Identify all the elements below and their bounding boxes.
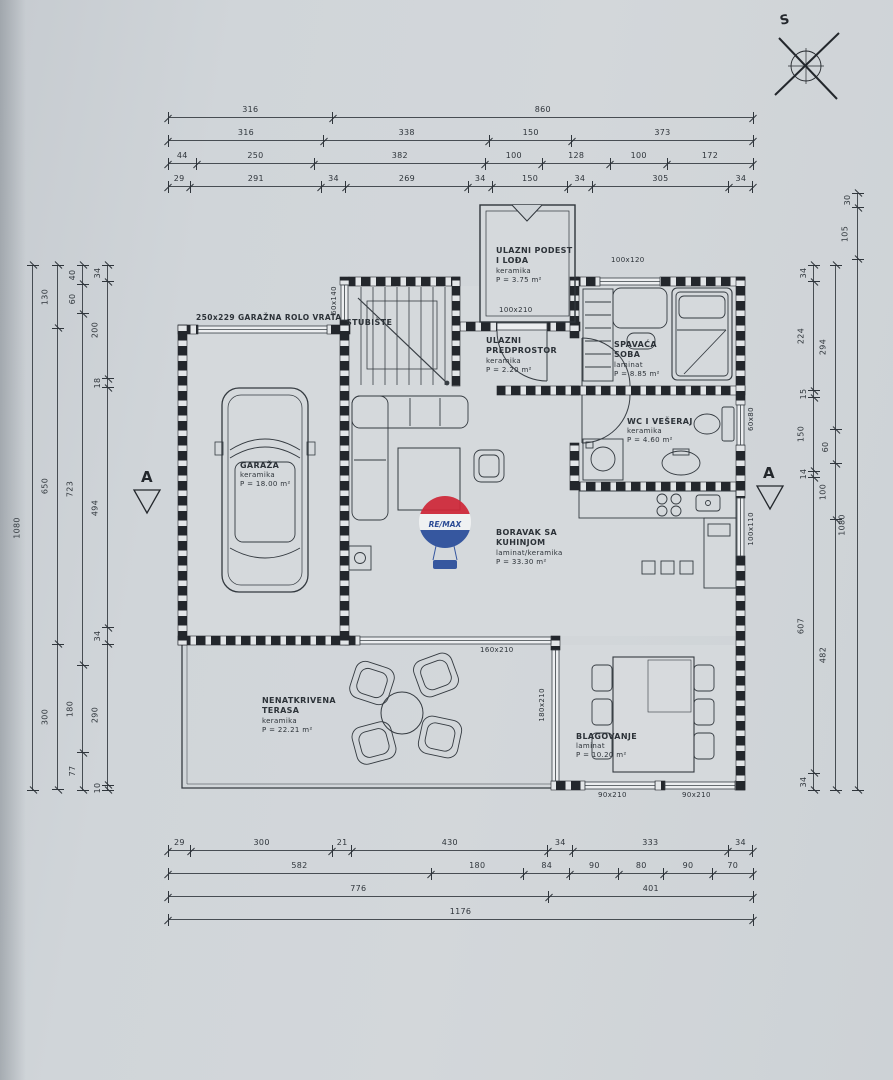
dim-label: 430: [442, 838, 458, 847]
opening-label-dining-window-a: 90x210: [598, 791, 627, 799]
dim-segment: 100: [610, 151, 667, 164]
room-floor: keramika: [262, 717, 336, 726]
room-label-spavaca-soba: SPAVAĆA SOBA laminat P = 8.85 m²: [614, 340, 660, 379]
dim-segment: 34: [728, 838, 753, 851]
dim-label: 150: [523, 128, 539, 137]
room-name: TERASA: [262, 706, 336, 716]
dim-label: 180: [65, 701, 74, 717]
dim-label: 316: [238, 128, 254, 137]
room-label-boravak: BORAVAK SA KUHINJOM laminat/keramika P =…: [496, 528, 563, 567]
dim-label: 34: [475, 174, 486, 183]
room-name: NENATKRIVENA: [262, 696, 336, 706]
dim-label: 1176: [450, 907, 472, 916]
dim-label: 29: [174, 838, 185, 847]
dim-label: 200: [90, 322, 99, 338]
dimension-row: 316860: [168, 100, 753, 118]
dim-segment: 128: [542, 151, 610, 164]
room-area: P = 2.20 m²: [486, 366, 557, 375]
room-floor: keramika: [240, 471, 291, 480]
dim-label: 34: [799, 268, 808, 279]
dim-segment: 723: [67, 314, 83, 665]
floor-plan-sheet: RE/MAX ULAZNI PODEST I LOĐA keramika P =…: [0, 0, 893, 1080]
dim-label: 40: [68, 269, 77, 280]
dim-label: 70: [727, 861, 738, 870]
dim-label: 90: [683, 861, 694, 870]
dim-segment: 10: [92, 785, 108, 790]
room-floor: laminat: [576, 742, 637, 751]
dim-label: 21: [337, 838, 348, 847]
room-label-podest: ULAZNI PODEST I LOĐA keramika P = 3.75 m…: [496, 246, 573, 285]
dim-segment: 180: [431, 861, 524, 874]
dim-label: 294: [818, 339, 827, 355]
dim-label: 1080: [838, 514, 847, 536]
dim-label: 100: [631, 151, 647, 160]
dim-label: 401: [643, 884, 659, 893]
dimension-column: 406072318077: [67, 265, 83, 790]
dim-label: 373: [654, 128, 670, 137]
dim-segment: 650: [42, 328, 58, 644]
dimension-column: 1080: [17, 265, 33, 790]
opening-label-entry-door: 100x210: [499, 306, 533, 314]
dim-segment: 34: [321, 174, 345, 187]
dim-segment: 224: [798, 282, 814, 391]
room-area: P = 33.30 m²: [496, 558, 563, 567]
dim-segment: 100: [820, 464, 836, 520]
dim-label: 34: [93, 631, 102, 642]
dim-segment: 60: [820, 430, 836, 464]
terrace-chairs: [347, 650, 463, 766]
dim-segment: 100: [485, 151, 542, 164]
dim-segment: 494: [92, 388, 108, 628]
room-area: P = 4.60 m²: [627, 436, 693, 445]
dim-label: 582: [291, 861, 307, 870]
room-name: BLAGOVANJE: [576, 732, 637, 742]
dim-label: 100: [818, 484, 827, 500]
room-area: P = 18.00 m²: [240, 480, 291, 489]
dim-label: 291: [248, 174, 264, 183]
room-label-blagovanje: BLAGOVANJE laminat P = 10.20 m²: [576, 732, 637, 761]
dim-segment: 34: [729, 174, 753, 187]
dim-segment: 401: [549, 884, 753, 897]
dim-label: 100: [506, 151, 522, 160]
dim-label: 776: [350, 884, 366, 893]
dim-segment: 150: [489, 128, 571, 141]
section-label-left: A: [141, 468, 153, 486]
dim-segment: 300: [191, 838, 333, 851]
dim-label: 77: [68, 766, 77, 777]
room-label-predprostor: ULAZNI PREDPROSTOR keramika P = 2.20 m²: [486, 336, 557, 375]
dim-label: 80: [636, 861, 647, 870]
dim-label: 150: [522, 174, 538, 183]
dimension-row: 5821808490809070: [168, 856, 753, 874]
dimension-column: 130650300: [42, 265, 58, 790]
room-name: ULAZNI PODEST: [496, 246, 573, 256]
dim-segment: 776: [168, 884, 549, 897]
dim-segment: 200: [92, 282, 108, 379]
room-floor: keramika: [627, 427, 693, 436]
dim-segment: 44: [168, 151, 197, 164]
dim-label: 333: [642, 838, 658, 847]
dim-segment: 316: [168, 128, 324, 141]
dim-segment: 305: [592, 174, 729, 187]
dim-label: 29: [174, 174, 185, 183]
dim-segment: 70: [713, 861, 753, 874]
dim-segment: 180: [67, 665, 83, 753]
dim-segment: 482: [820, 520, 836, 790]
dim-label: 180: [469, 861, 485, 870]
dim-segment: 316: [168, 105, 333, 118]
dim-label: 44: [177, 151, 188, 160]
compass-icon: [775, 33, 839, 99]
room-name: KUHINJOM: [496, 538, 563, 548]
dim-segment: 333: [573, 838, 728, 851]
dim-label: 172: [702, 151, 718, 160]
opening-label-living-window: 160x210: [480, 646, 514, 654]
dim-segment: 1080: [842, 259, 858, 790]
dim-label: 30: [843, 195, 852, 206]
dim-segment: 29: [168, 838, 191, 851]
dim-segment: 300: [42, 644, 58, 790]
room-name: I LOĐA: [496, 256, 573, 266]
dim-segment: 269: [346, 174, 469, 187]
room-area: P = 22.21 m²: [262, 726, 336, 735]
dimension-column: 34224151501460734: [798, 265, 814, 790]
dim-label: 60: [821, 441, 830, 452]
room-name: BORAVAK SA: [496, 528, 563, 538]
room-name: GARAŽA: [240, 461, 291, 471]
dim-label: 723: [65, 481, 74, 497]
opening-label-bedroom-window: 100x120: [611, 256, 645, 264]
dim-segment: 34: [468, 174, 492, 187]
dimension-column: 34200184943429010: [92, 265, 108, 790]
opening-label-kitchen-window: 100x110: [747, 512, 755, 546]
room-floor: laminat/keramika: [496, 549, 563, 558]
dimension-row: 2929134269341503430534: [168, 169, 753, 187]
dim-segment: 77: [67, 753, 83, 790]
room-floor: keramika: [486, 357, 557, 366]
dimension-row: 776401: [168, 879, 753, 897]
dim-segment: 150: [798, 398, 814, 471]
room-floor: laminat: [614, 361, 660, 370]
opening-label-dining-window-b: 90x210: [682, 791, 711, 799]
terrace-outline: [182, 645, 553, 788]
dim-segment: 29: [168, 174, 190, 187]
dim-segment: 34: [548, 838, 573, 851]
dim-segment: 430: [352, 838, 548, 851]
dim-segment: 373: [572, 128, 753, 141]
dim-segment: 150: [492, 174, 567, 187]
room-name: PREDPROSTOR: [486, 346, 557, 356]
dim-label: 60: [68, 294, 77, 305]
dimension-row: 1176: [168, 902, 753, 920]
dim-segment: 290: [92, 644, 108, 785]
room-label-stubiste: STUBIŠTE: [346, 318, 392, 328]
dim-label: 482: [818, 647, 827, 663]
dim-segment: 90: [570, 861, 619, 874]
dim-segment: 84: [524, 861, 570, 874]
dim-label: 150: [796, 426, 805, 442]
dim-segment: 34: [798, 773, 814, 790]
dim-segment: 294: [820, 265, 836, 430]
dim-label: 860: [535, 105, 551, 114]
room-label-garaza: GARAŽA keramika P = 18.00 m²: [240, 461, 291, 490]
dim-label: 382: [392, 151, 408, 160]
dimension-column: 301051080: [842, 193, 858, 790]
dimension-column: 29460100482: [820, 265, 836, 790]
dim-segment: 291: [190, 174, 321, 187]
dim-label: 316: [242, 105, 258, 114]
dim-label: 34: [328, 174, 339, 183]
dim-segment: 172: [667, 151, 753, 164]
dim-segment: 1080: [17, 265, 33, 790]
room-area: P = 10.20 m²: [576, 751, 637, 760]
room-name: WC I VEŠERAJ: [627, 417, 693, 427]
dim-label: 305: [652, 174, 668, 183]
dim-label: 90: [589, 861, 600, 870]
room-name: ULAZNI: [486, 336, 557, 346]
dim-segment: 130: [42, 265, 58, 328]
dim-label: 34: [93, 268, 102, 279]
room-label-wc-veseraj: WC I VEŠERAJ keramika P = 4.60 m²: [627, 417, 693, 446]
dim-segment: 382: [314, 151, 485, 164]
opening-label-wc-window: 60x80: [747, 407, 755, 431]
room-label-terasa: NENATKRIVENA TERASA keramika P = 22.21 m…: [262, 696, 336, 735]
dimension-row: 316338150373: [168, 123, 753, 141]
room-area: P = 8.85 m²: [614, 370, 660, 379]
dim-segment: 80: [619, 861, 664, 874]
terrace-table: [381, 692, 423, 734]
dim-label: 34: [575, 174, 586, 183]
dimension-row: 29300214303433334: [168, 833, 753, 851]
section-label-right: A: [763, 464, 775, 482]
dim-segment: 1176: [168, 907, 753, 920]
dim-segment: 582: [168, 861, 431, 874]
dim-label: 290: [90, 707, 99, 723]
dim-segment: 105: [842, 208, 858, 260]
room-name: STUBIŠTE: [346, 318, 392, 328]
dim-segment: 250: [197, 151, 315, 164]
dim-label: 269: [399, 174, 415, 183]
dim-segment: 338: [324, 128, 490, 141]
dim-label: 128: [568, 151, 584, 160]
dim-label: 84: [541, 861, 552, 870]
dim-segment: 21: [332, 838, 352, 851]
room-name: SPAVAĆA: [614, 340, 660, 350]
room-name: SOBA: [614, 350, 660, 360]
dim-segment: 860: [333, 105, 753, 118]
dim-label: 250: [247, 151, 263, 160]
room-area: P = 3.75 m²: [496, 276, 573, 285]
dim-label: 338: [399, 128, 415, 137]
dim-segment: 60: [67, 284, 83, 313]
dim-label: 607: [796, 618, 805, 634]
dim-label: 224: [796, 328, 805, 344]
dim-segment: 34: [568, 174, 592, 187]
room-floor: keramika: [496, 267, 573, 276]
dimension-row: 44250382100128100172: [168, 146, 753, 164]
dim-label: 34: [555, 838, 566, 847]
opening-label-stairs-window: 60x140: [330, 286, 338, 315]
dim-label: 34: [799, 776, 808, 787]
dim-label: 34: [735, 838, 746, 847]
dim-label: 300: [40, 709, 49, 725]
dim-label: 130: [40, 289, 49, 305]
dim-label: 1080: [13, 517, 22, 539]
dim-label: 300: [254, 838, 270, 847]
opening-label-garage-door: 250x229 GARAŽNA ROLO VRATA: [196, 313, 342, 322]
dim-label: 105: [840, 225, 849, 241]
dim-label: 494: [90, 499, 99, 515]
dim-segment: 90: [664, 861, 713, 874]
dim-segment: 607: [798, 478, 814, 774]
dim-label: 34: [735, 174, 746, 183]
dim-label: 650: [40, 478, 49, 494]
opening-label-dining-west-window: 180x210: [538, 688, 546, 722]
dim-label: 10: [93, 782, 102, 793]
remax-brand-text: RE/MAX: [429, 520, 463, 529]
